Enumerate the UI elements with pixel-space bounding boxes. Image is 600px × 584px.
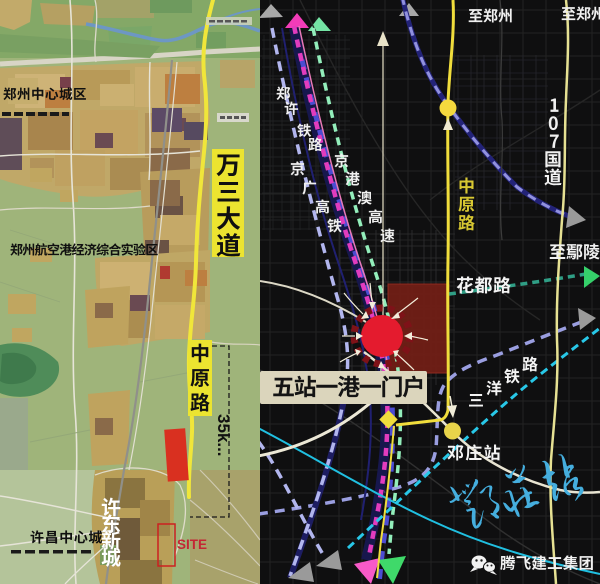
svg-text:SITE: SITE bbox=[177, 537, 207, 552]
svg-text:35k...: 35k... bbox=[214, 414, 233, 457]
